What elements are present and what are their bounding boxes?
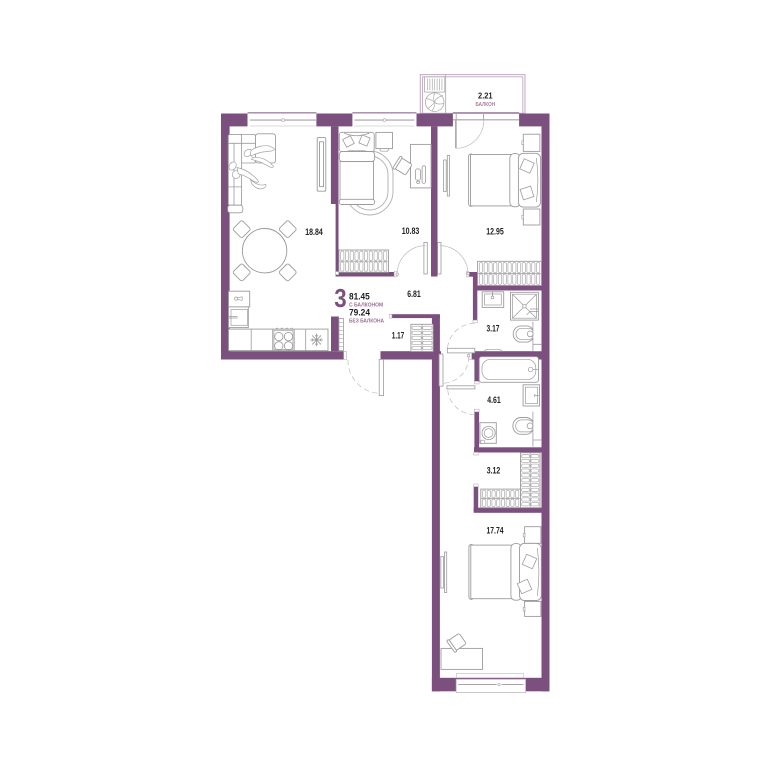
svg-text:6.81: 6.81 [407,289,421,300]
svg-text:2.21: 2.21 [478,92,493,101]
svg-text:3.12: 3.12 [487,466,501,477]
svg-text:12.95: 12.95 [486,226,504,237]
svg-text:1.17: 1.17 [392,331,405,342]
svg-text:4.61: 4.61 [487,395,501,406]
svg-text:БЕЗ БАЛКОНА: БЕЗ БАЛКОНА [349,318,384,324]
svg-text:81.45: 81.45 [349,292,370,302]
svg-text:3: 3 [334,283,346,313]
svg-text:18.84: 18.84 [305,227,323,238]
svg-text:79.24: 79.24 [349,308,370,318]
svg-text:3.17: 3.17 [487,324,500,335]
svg-text:17.74: 17.74 [487,526,504,537]
svg-text:БАЛКОН: БАЛКОН [476,102,496,108]
svg-text:10.83: 10.83 [402,226,420,237]
